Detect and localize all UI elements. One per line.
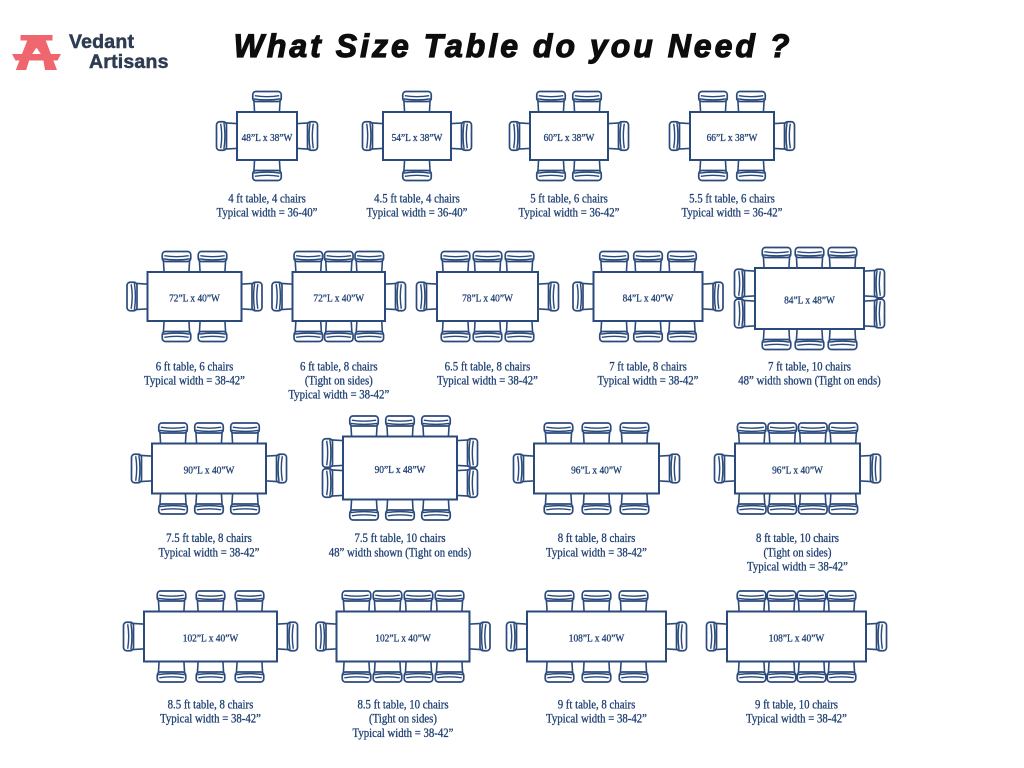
svg-text:Typical width = 38-42”: Typical width = 38-42” xyxy=(546,545,647,559)
svg-text:8.5 ft table, 10 chairs: 8.5 ft table, 10 chairs xyxy=(357,698,448,712)
svg-text:78”L x 40”W: 78”L x 40”W xyxy=(462,293,513,305)
svg-text:48” width shown (Tight on ends: 48” width shown (Tight on ends) xyxy=(738,374,881,388)
svg-text:Typical width = 38-42”: Typical width = 38-42” xyxy=(747,560,848,574)
svg-text:(Tight on sides): (Tight on sides) xyxy=(369,712,437,726)
svg-text:108”L x 40”W: 108”L x 40”W xyxy=(769,633,825,645)
svg-text:90”L x 40”W: 90”L x 40”W xyxy=(184,465,235,477)
svg-text:96”L x 40”W: 96”L x 40”W xyxy=(571,465,622,477)
svg-text:84”L x 48”W: 84”L x 48”W xyxy=(784,295,835,307)
svg-text:7 ft table, 10 chairs: 7 ft table, 10 chairs xyxy=(768,359,851,373)
svg-text:Typical width = 36-40”: Typical width = 36-40” xyxy=(217,206,318,220)
svg-text:(Tight on sides): (Tight on sides) xyxy=(764,545,832,559)
svg-text:102”L x 40”W: 102”L x 40”W xyxy=(375,633,431,645)
svg-text:Typical width = 36-40”: Typical width = 36-40” xyxy=(367,206,468,220)
svg-text:108”L x 40”W: 108”L x 40”W xyxy=(569,633,625,645)
svg-text:7 ft table, 8 chairs: 7 ft table, 8 chairs xyxy=(609,359,687,373)
svg-text:8 ft table, 10 chairs: 8 ft table, 10 chairs xyxy=(756,531,839,545)
svg-text:Typical width = 38-42”: Typical width = 38-42” xyxy=(160,712,261,726)
svg-text:7.5 ft table, 10 chairs: 7.5 ft table, 10 chairs xyxy=(354,531,445,545)
svg-text:Typical width = 38-42”: Typical width = 38-42” xyxy=(746,712,847,726)
svg-text:96”L x 40”W: 96”L x 40”W xyxy=(772,465,823,477)
svg-text:Typical width = 36-42”: Typical width = 36-42” xyxy=(682,206,783,220)
svg-text:Typical width = 38-42”: Typical width = 38-42” xyxy=(159,545,260,559)
svg-text:48”L x 38”W: 48”L x 38”W xyxy=(242,132,293,144)
svg-text:(Tight on sides): (Tight on sides) xyxy=(305,374,373,388)
svg-text:Typical width = 38-42”: Typical width = 38-42” xyxy=(546,712,647,726)
svg-text:6 ft table, 8 chairs: 6 ft table, 8 chairs xyxy=(300,359,378,373)
svg-text:9 ft table, 8 chairs: 9 ft table, 8 chairs xyxy=(558,698,636,712)
svg-text:84”L x 40”W: 84”L x 40”W xyxy=(623,293,674,305)
svg-text:8.5 ft table, 8 chairs: 8.5 ft table, 8 chairs xyxy=(168,698,254,712)
svg-text:4 ft table, 4 chairs: 4 ft table, 4 chairs xyxy=(228,191,306,205)
svg-text:54”L x 38”W: 54”L x 38”W xyxy=(392,132,443,144)
svg-text:9 ft table, 10 chairs: 9 ft table, 10 chairs xyxy=(755,698,838,712)
svg-text:Typical width = 38-42”: Typical width = 38-42” xyxy=(437,374,538,388)
svg-text:66”L x 38”W: 66”L x 38”W xyxy=(707,132,758,144)
svg-text:7.5 ft table, 8 chairs: 7.5 ft table, 8 chairs xyxy=(166,531,252,545)
svg-text:60”L x 38”W: 60”L x 38”W xyxy=(544,132,595,144)
svg-text:5.5 ft table, 6 chairs: 5.5 ft table, 6 chairs xyxy=(689,191,775,205)
svg-text:48” width shown (Tight on ends: 48” width shown (Tight on ends) xyxy=(329,545,472,559)
svg-text:5 ft table, 6 chairs: 5 ft table, 6 chairs xyxy=(530,191,608,205)
svg-text:6 ft table, 6 chairs: 6 ft table, 6 chairs xyxy=(156,359,234,373)
svg-text:Typical width = 38-42”: Typical width = 38-42” xyxy=(598,374,699,388)
svg-text:Typical width = 38-42”: Typical width = 38-42” xyxy=(288,388,389,402)
svg-text:Typical width = 38-42”: Typical width = 38-42” xyxy=(144,374,245,388)
svg-text:72”L x 40”W: 72”L x 40”W xyxy=(313,293,364,305)
svg-text:102”L x 40”W: 102”L x 40”W xyxy=(183,633,239,645)
svg-text:8 ft table, 8 chairs: 8 ft table, 8 chairs xyxy=(558,531,636,545)
svg-text:6.5 ft table, 8 chairs: 6.5 ft table, 8 chairs xyxy=(445,359,531,373)
svg-text:72”L x 40”W: 72”L x 40”W xyxy=(169,293,220,305)
svg-text:90”L x 48”W: 90”L x 48”W xyxy=(375,464,426,476)
svg-text:Typical width = 36-42”: Typical width = 36-42” xyxy=(519,206,620,220)
svg-text:4.5 ft table, 4 chairs: 4.5 ft table, 4 chairs xyxy=(374,191,460,205)
svg-text:Typical width = 38-42”: Typical width = 38-42” xyxy=(353,726,454,740)
